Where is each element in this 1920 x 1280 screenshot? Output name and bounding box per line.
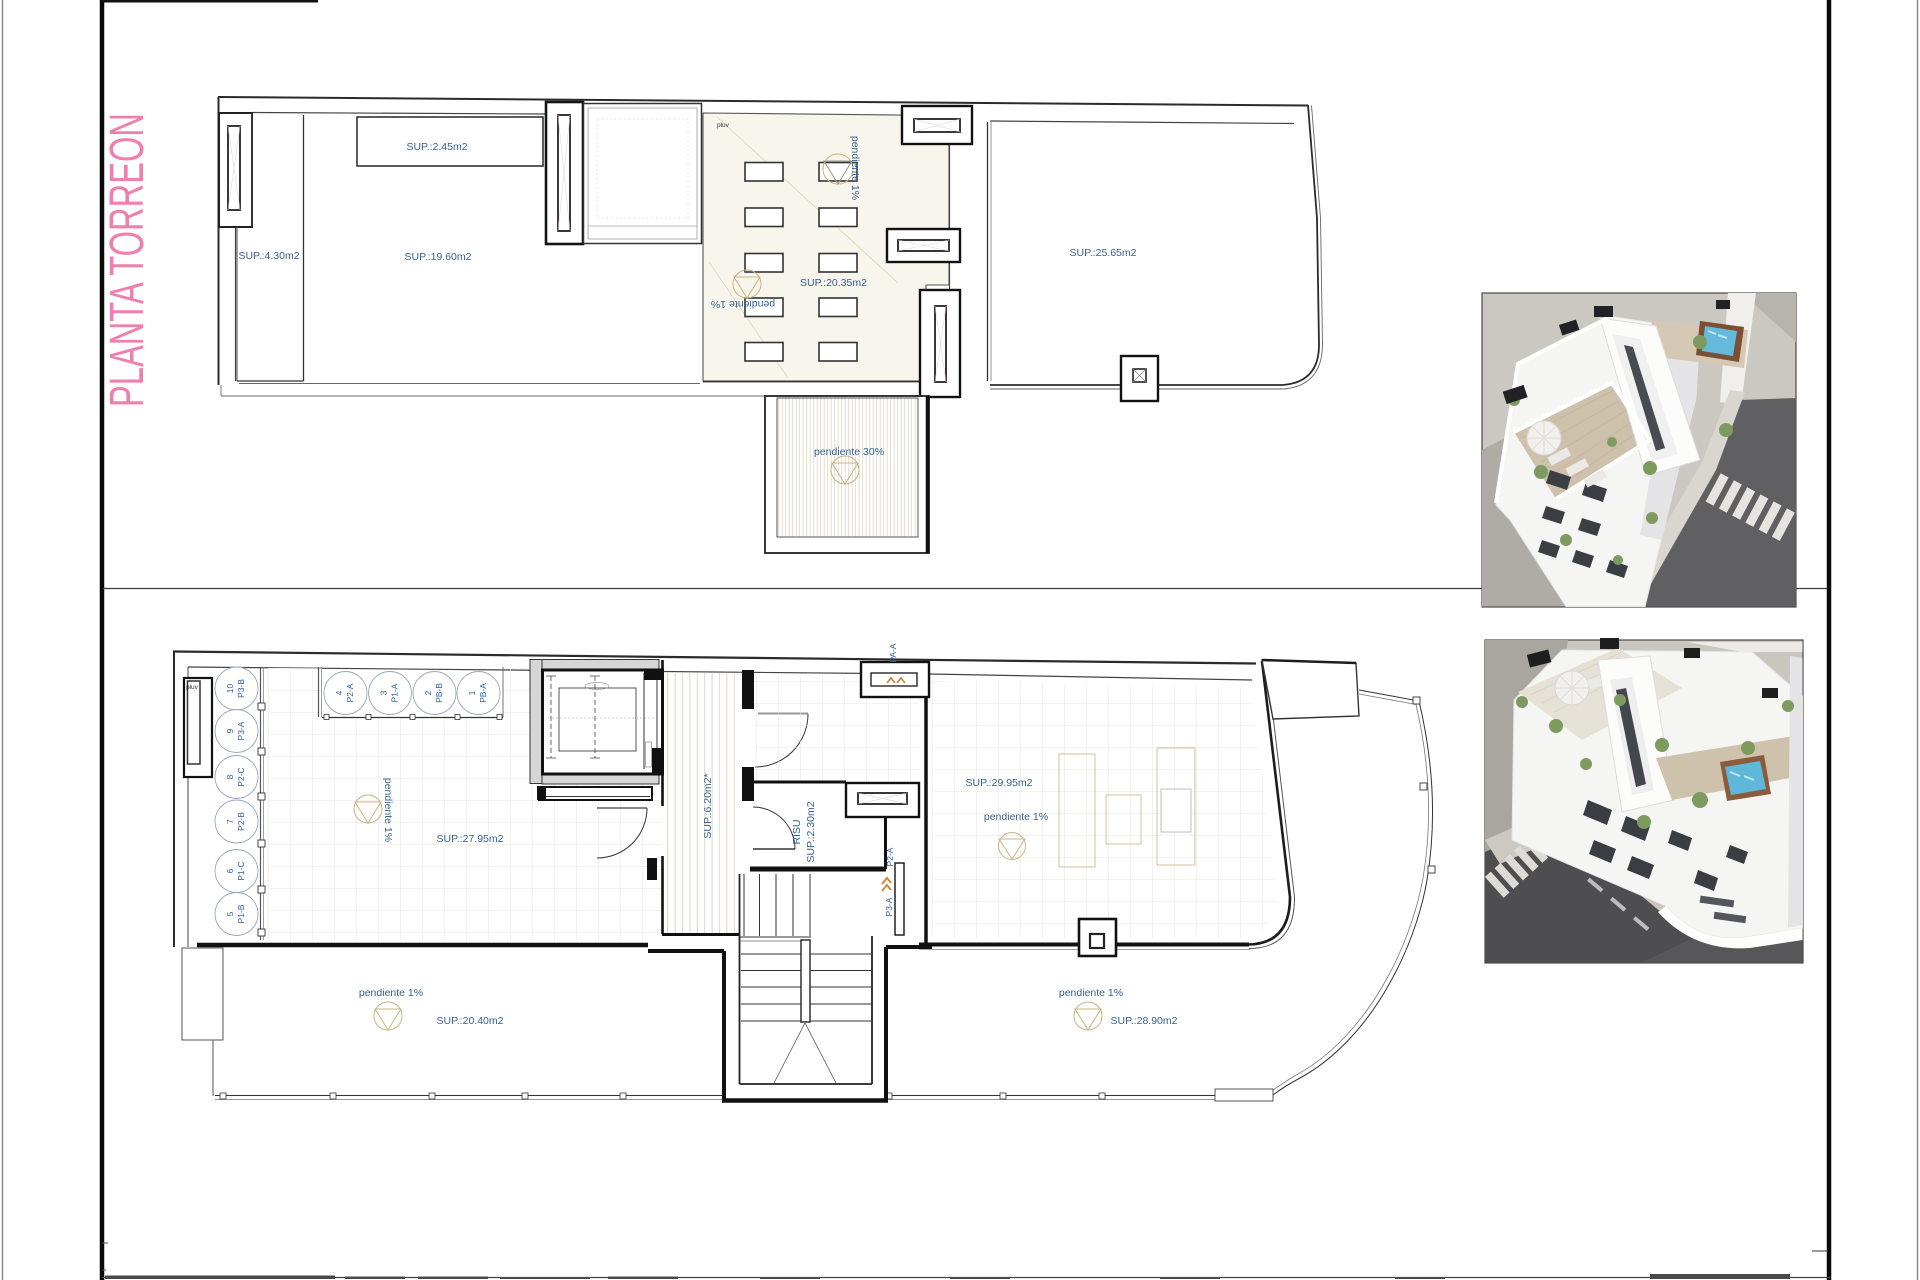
svg-text:3: 3 bbox=[379, 690, 389, 695]
svg-text:SUP.:20.35m2: SUP.:20.35m2 bbox=[800, 277, 867, 289]
svg-text:SUP.:4.30m2: SUP.:4.30m2 bbox=[238, 250, 299, 262]
svg-text:SUP.:20.40m2: SUP.:20.40m2 bbox=[437, 1015, 504, 1027]
svg-text:P1-B: P1-B bbox=[236, 904, 246, 923]
svg-text:P2-A: P2-A bbox=[345, 683, 355, 702]
svg-text:SUP.:2.30m2: SUP.:2.30m2 bbox=[805, 801, 817, 862]
svg-text:9: 9 bbox=[225, 728, 235, 733]
svg-text:4: 4 bbox=[334, 690, 344, 695]
svg-text:SUP.:27.95m2: SUP.:27.95m2 bbox=[437, 833, 504, 845]
svg-text:PA-A: PA-A bbox=[888, 643, 898, 663]
svg-text:P2-C: P2-C bbox=[236, 767, 246, 786]
svg-text:PB-B: PB-B bbox=[434, 683, 444, 703]
svg-text:PLANTA TORREON: PLANTA TORREON bbox=[101, 113, 154, 407]
svg-text:P2-B: P2-B bbox=[236, 812, 246, 831]
svg-text:SUP.:29.95m2: SUP.:29.95m2 bbox=[966, 777, 1033, 789]
svg-text:P3-B: P3-B bbox=[236, 679, 246, 698]
svg-text:P2-A: P2-A bbox=[885, 847, 895, 866]
svg-text:SUP.:2.45m2: SUP.:2.45m2 bbox=[406, 141, 467, 153]
svg-text:pendiente 1%: pendiente 1% bbox=[1059, 987, 1123, 999]
svg-text:pendiente 1%: pendiente 1% bbox=[359, 987, 423, 999]
svg-text:pendiente 1%: pendiente 1% bbox=[382, 778, 394, 842]
svg-text:6: 6 bbox=[225, 868, 235, 873]
svg-text:7: 7 bbox=[225, 819, 235, 824]
svg-text:pendiente 1%: pendiente 1% bbox=[849, 136, 861, 200]
svg-text:P3-A: P3-A bbox=[884, 897, 894, 916]
svg-text:P1-A: P1-A bbox=[390, 683, 400, 702]
svg-text:P1-C: P1-C bbox=[236, 861, 246, 880]
svg-text:P3-A: P3-A bbox=[236, 721, 246, 740]
svg-text:SUP.:19.60m2: SUP.:19.60m2 bbox=[405, 251, 472, 263]
svg-text:SUP.:25.65m2: SUP.:25.65m2 bbox=[1070, 247, 1137, 259]
svg-text:PB-A: PB-A bbox=[478, 683, 488, 703]
svg-text:10: 10 bbox=[225, 684, 235, 694]
svg-text:SUP.:28.90m2: SUP.:28.90m2 bbox=[1111, 1015, 1178, 1027]
svg-text:8: 8 bbox=[225, 774, 235, 779]
svg-text:pluv: pluv bbox=[717, 122, 730, 129]
svg-text:2: 2 bbox=[423, 690, 433, 695]
svg-text:1: 1 bbox=[467, 690, 477, 695]
svg-text:pendiente 1%: pendiente 1% bbox=[984, 811, 1048, 823]
svg-text:RISU: RISU bbox=[791, 819, 803, 844]
svg-text:pendiente 1%: pendiente 1% bbox=[711, 298, 775, 310]
svg-text:SUP.:6.20m2*: SUP.:6.20m2* bbox=[702, 773, 714, 838]
svg-text:5: 5 bbox=[225, 911, 235, 916]
svg-text:pluv: pluv bbox=[186, 684, 199, 691]
